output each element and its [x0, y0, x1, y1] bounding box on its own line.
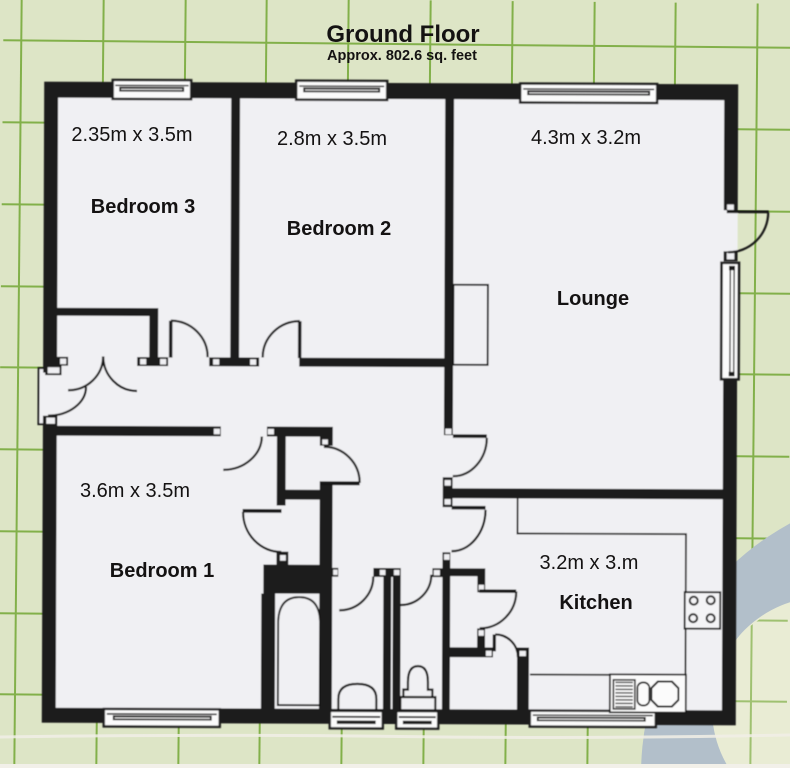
- svg-text:Ground Floor: Ground Floor: [326, 21, 479, 48]
- svg-text:2.8m x 3.5m: 2.8m x 3.5m: [277, 128, 387, 150]
- svg-text:Kitchen: Kitchen: [559, 592, 632, 614]
- svg-text:4.3m x 3.2m: 4.3m x 3.2m: [531, 127, 641, 149]
- svg-text:Bedroom 2: Bedroom 2: [287, 218, 391, 240]
- svg-text:Bedroom 3: Bedroom 3: [91, 196, 195, 218]
- svg-text:2.35m x 3.5m: 2.35m x 3.5m: [71, 124, 192, 146]
- svg-text:Lounge: Lounge: [557, 288, 629, 310]
- svg-text:Bedroom 1: Bedroom 1: [110, 560, 214, 582]
- svg-text:3.6m x 3.5m: 3.6m x 3.5m: [80, 480, 190, 502]
- svg-text:Approx. 802.6 sq. feet: Approx. 802.6 sq. feet: [327, 48, 477, 64]
- svg-text:3.2m x 3.m: 3.2m x 3.m: [540, 552, 639, 574]
